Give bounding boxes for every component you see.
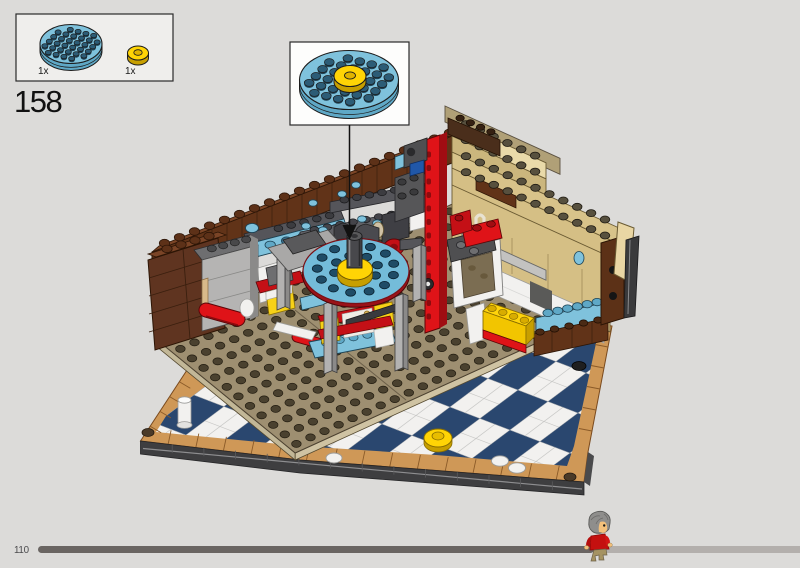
svg-text:1x: 1x (38, 66, 49, 77)
svg-text:158: 158 (14, 84, 61, 119)
svg-text:1x: 1x (125, 66, 136, 77)
svg-text:110: 110 (14, 545, 30, 556)
